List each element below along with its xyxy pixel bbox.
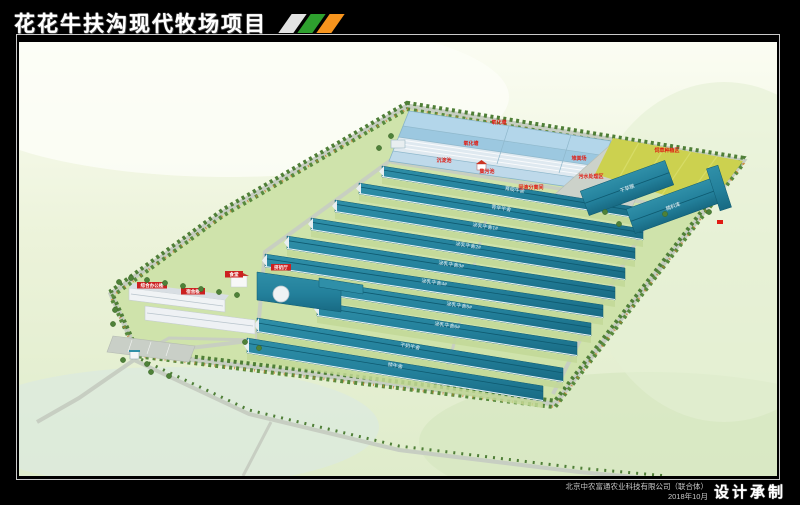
tree xyxy=(706,209,711,214)
tree xyxy=(110,321,115,326)
tree xyxy=(216,289,221,294)
tree xyxy=(148,369,153,374)
tree xyxy=(242,339,247,344)
facility-label: 沉淀池 xyxy=(436,157,451,164)
rendering-canvas: 育成牛舍青年牛舍泌乳牛舍1#泌乳牛舍2#泌乳牛舍3#泌乳牛舍4#泌乳牛舍5#泌乳… xyxy=(19,42,777,476)
facility-label: 氧化塘 xyxy=(490,119,506,126)
brand-logo-icon xyxy=(281,13,338,33)
banner-label: 挤奶厅 xyxy=(274,264,288,271)
tree xyxy=(144,361,149,366)
design-date: 2018年10月 xyxy=(565,492,708,502)
tree xyxy=(602,209,607,214)
facility-label: 氧化塘 xyxy=(462,140,478,147)
design-company: 北京中农富通农业科技有限公司（联合体） xyxy=(565,482,708,492)
banner-label: 食堂 xyxy=(229,271,239,278)
poster: 花花牛扶沟现代牧场项目 育成牛舍青年牛舍泌乳牛舍1#泌乳牛舍2#泌乳牛舍3#泌乳… xyxy=(0,0,800,505)
tree xyxy=(376,145,381,150)
facility-label: 堆粪场 xyxy=(571,155,586,162)
canteen-building xyxy=(231,276,247,287)
pump-shed xyxy=(391,140,405,148)
tree xyxy=(234,292,239,297)
credits: 北京中农富通农业科技有限公司（联合体） 2018年10月 设计承制 xyxy=(565,481,786,502)
tree xyxy=(112,307,117,312)
tree xyxy=(388,133,393,138)
tree xyxy=(662,211,667,216)
facility-label: 集污池 xyxy=(478,168,494,175)
side-gate-marker xyxy=(717,220,723,224)
main-gate xyxy=(129,350,140,359)
tree xyxy=(166,373,171,378)
facility-label: 污水处理区 xyxy=(578,173,603,180)
tree xyxy=(120,357,125,362)
tree xyxy=(144,277,149,282)
site-plan-rendering: 育成牛舍青年牛舍泌乳牛舍1#泌乳牛舍2#泌乳牛舍3#泌乳牛舍4#泌乳牛舍5#泌乳… xyxy=(19,42,777,476)
gate-house xyxy=(130,351,139,359)
rotary-parlor xyxy=(273,286,289,302)
gate-roof xyxy=(129,350,140,352)
tree xyxy=(116,279,121,284)
design-credit: 设计承制 xyxy=(714,481,786,502)
tree xyxy=(180,283,185,288)
drawing-frame: 育成牛舍青年牛舍泌乳牛舍1#泌乳牛舍2#泌乳牛舍3#泌乳牛舍4#泌乳牛舍5#泌乳… xyxy=(16,34,780,480)
tree xyxy=(128,275,133,280)
tree xyxy=(616,221,621,226)
tree xyxy=(162,280,167,285)
tree xyxy=(198,286,203,291)
facility-label: 固液分离间 xyxy=(518,184,543,191)
banner-label: 综合办公楼 xyxy=(141,282,164,289)
facility-label: 饲草种植区 xyxy=(653,147,679,154)
tree xyxy=(256,345,261,350)
